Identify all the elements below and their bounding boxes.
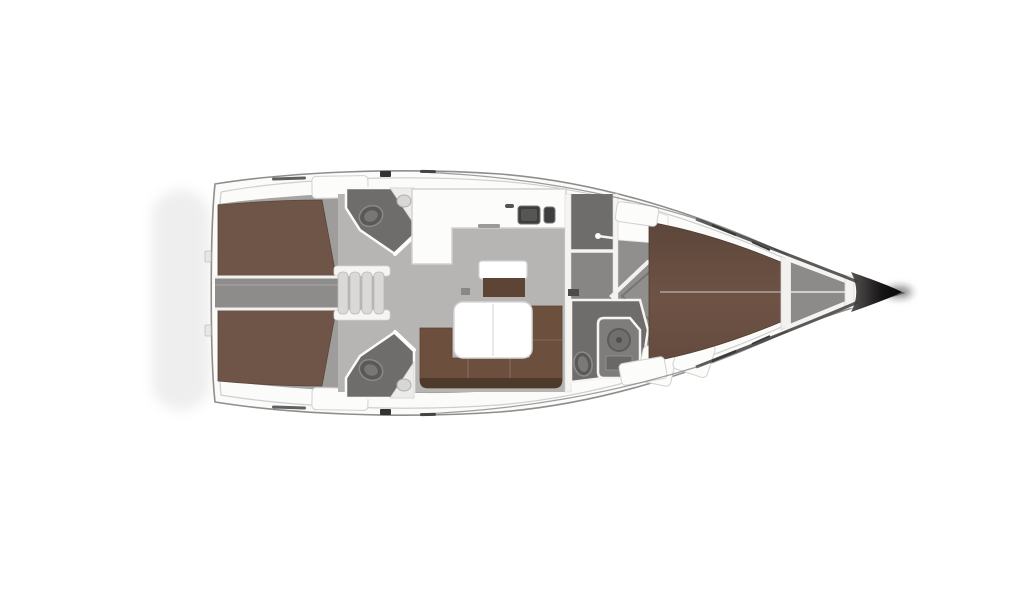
passage-hatch-mark [568,289,579,296]
transom-notch-top [205,251,211,262]
yacht-floor-plan-canvas [0,0,1024,600]
deck-slit-top [420,170,436,173]
sink-bowl-top [397,195,411,207]
step-tread-1 [338,272,348,314]
wet-locker [571,194,615,252]
aft-berth-starboard [218,310,336,386]
galley-counter-latch [478,224,500,228]
yacht-floor-plan [0,0,1024,600]
sofa-bottom-shadow [420,378,562,388]
bow-tip-halo [886,286,912,298]
forward-bulkhead [781,256,791,330]
galley-faucet [505,204,514,208]
transom-shadow [152,190,210,410]
sideboard-body [483,278,525,297]
engine-corridor [215,278,340,308]
floor-hatch-mark [461,288,470,295]
locker-door-knob [595,233,601,239]
transom-notch-bottom [205,325,211,336]
aft-berth-port [218,200,336,276]
step-tread-2 [350,272,360,314]
deck-slit-bottom [420,413,436,416]
companionway-steps [334,266,390,320]
deck-hatch-bottom [380,409,391,415]
deck-hatch-top [380,171,391,177]
step-tread-3 [362,272,372,314]
galley-sink-large-basin [521,209,537,221]
shower-drain-center [616,337,622,343]
galley-sink-small [544,207,555,223]
sideboard-top [479,261,527,279]
sink-bowl-bottom [397,379,411,391]
step-tread-4 [374,272,384,314]
